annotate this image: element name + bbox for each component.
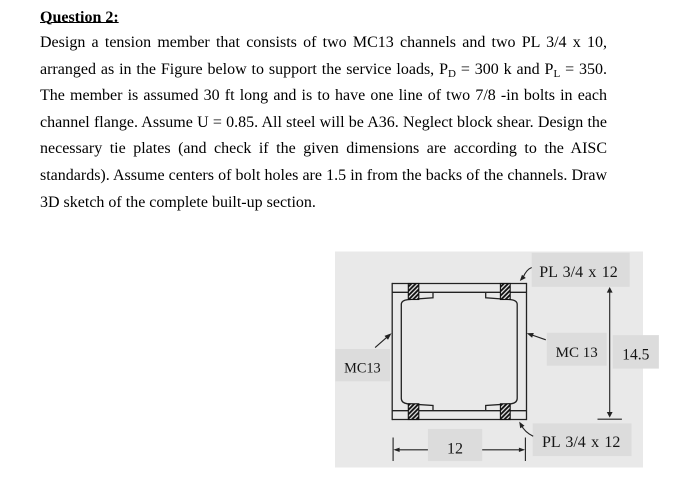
svg-text:MC 13: MC 13 (556, 345, 598, 361)
svg-text:PL 3/4 x 12: PL 3/4 x 12 (539, 264, 617, 281)
svg-text:MC13: MC13 (344, 361, 381, 377)
svg-text:14.5: 14.5 (622, 347, 649, 364)
svg-text:12: 12 (447, 441, 463, 458)
svg-text:PL 3/4 x 12: PL 3/4 x 12 (542, 434, 620, 451)
